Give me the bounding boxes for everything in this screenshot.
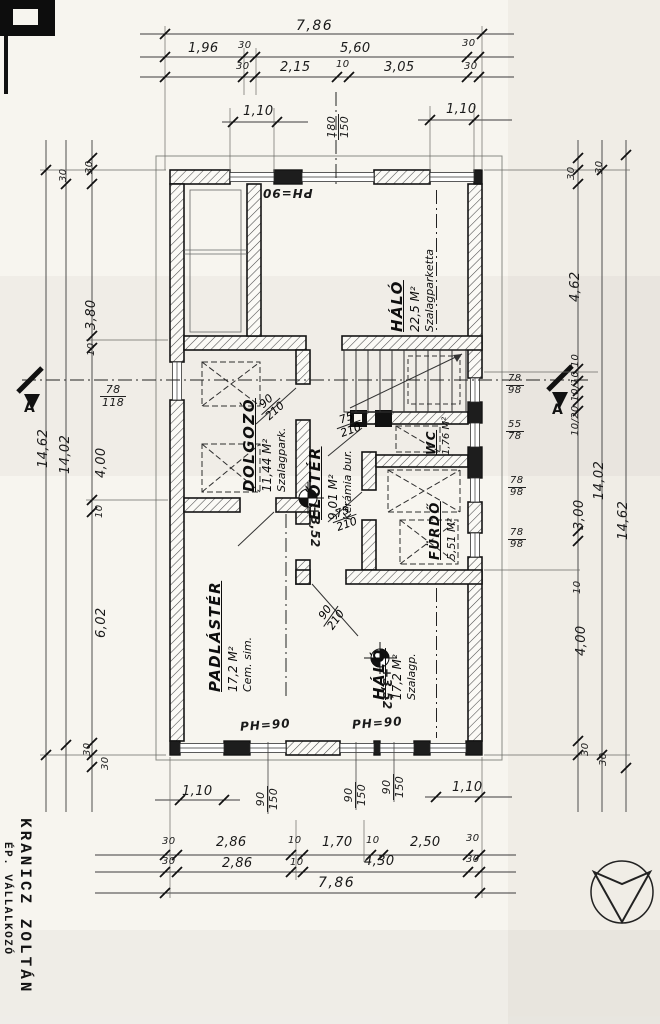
dim-right: 30	[594, 160, 605, 174]
section-letter-left: A	[24, 400, 35, 416]
stamp-architect-name: KRANICZ ZOLTÁN	[16, 818, 34, 994]
dim-left: 30	[82, 742, 93, 756]
dim-right-overall: 14,62	[616, 501, 631, 540]
dim-window-bottom-left: 1,10	[182, 784, 213, 799]
terrace-detail	[184, 190, 247, 332]
dim-bottom: 1,70	[322, 835, 353, 850]
dim-bottom: 10	[290, 857, 304, 868]
room-label-wc: WC 1,76 M²	[424, 417, 453, 455]
dim-right: 3,00	[572, 499, 587, 530]
room-label-padlaster: PADLÁSTÉR 17,2 M² Cem. sim.	[206, 581, 255, 692]
window-size-right-2: 5578	[506, 420, 524, 442]
dim-bottom: 2,50	[410, 835, 441, 850]
dim-right: 30	[580, 742, 591, 756]
window-size-bottom-1: 90150	[255, 786, 279, 812]
level-value-eloter: +3,52	[308, 506, 322, 548]
dim-bottom: 4,30	[364, 854, 395, 869]
dim-top: 30	[236, 61, 250, 72]
dim-bottom-total: 7,86	[318, 875, 355, 891]
dim-top: 1,96	[188, 41, 219, 56]
window-size-right-3: 7898	[508, 476, 526, 498]
dim-left: 3,80	[84, 299, 99, 330]
dim-left: 30	[84, 160, 95, 174]
staircase	[344, 350, 466, 412]
section-letter-right: A	[552, 402, 563, 418]
window-size-right-1: 7898	[506, 374, 524, 396]
dim-bottom: 30	[162, 836, 176, 847]
level-value-halo: +3,52	[380, 668, 394, 710]
dim-right: 30	[598, 752, 609, 766]
window-size-top-main: 180150	[326, 114, 350, 140]
window-size-left-main: 78118	[100, 384, 126, 408]
dim-window-bottom-right: 1,10	[452, 780, 483, 795]
parapet-label-top: PH=90	[262, 186, 313, 200]
dim-top: 3,05	[384, 60, 415, 75]
dim-bottom: 10	[366, 835, 380, 846]
dim-left: 30	[100, 756, 111, 770]
dim-bottom: 30	[466, 854, 480, 865]
room-label-halo-top: HÁLÓ 22,5 M² Szalagparketta	[388, 249, 437, 332]
dim-left-interior: 14,02	[58, 435, 73, 474]
window-size-right-4: 7898	[508, 528, 526, 550]
dim-left-overall: 14,62	[36, 429, 51, 468]
dim-bottom: 30	[466, 833, 480, 844]
dim-left: 6,02	[94, 607, 109, 638]
dim-bottom: 2,86	[216, 835, 247, 850]
room-label-furdo: FÜRDŐ 5,51 M²	[428, 501, 459, 560]
dim-left: 10	[86, 342, 97, 356]
dim-right: 4,62	[568, 271, 583, 302]
dim-top: 30	[464, 61, 478, 72]
scan-artifacts	[0, 0, 55, 94]
dim-top: 10	[336, 59, 350, 70]
dim-right: 10/20 10/10 10	[570, 354, 581, 436]
window-size-bottom-3: 90150	[381, 774, 405, 800]
dim-bottom: 10	[288, 835, 302, 846]
north-arrow-icon	[591, 861, 653, 923]
dim-window-top-right: 1,10	[446, 102, 477, 117]
window-size-bottom-2: 90150	[343, 782, 367, 808]
dim-left: 30	[58, 168, 69, 182]
dim-right: 10	[572, 580, 583, 594]
dim-right: 30	[566, 166, 577, 180]
dim-window-top-left: 1,10	[243, 104, 274, 119]
dim-top-total: 7,86	[296, 18, 333, 34]
dim-top: 30	[462, 38, 476, 49]
dim-bottom: 2,86	[222, 856, 253, 871]
dim-top: 30	[238, 40, 252, 51]
dim-right: 4,00	[574, 625, 589, 656]
stamp-architect-title: ÉP. VÁLLALKOZÓ	[1, 842, 13, 955]
floorplan-scan: 7,86 1,96 30 5,60 30 30 2,15 10 3,05 30 …	[0, 0, 660, 1024]
dim-top: 2,15	[280, 60, 311, 75]
dim-top: 5,60	[340, 41, 371, 56]
room-label-halo-bottom: HÁLÓ 17,2 M² Szalagp.	[370, 648, 419, 700]
dim-right-interior: 14,02	[592, 461, 607, 500]
dim-bottom: 30	[162, 856, 176, 867]
dim-left: 4,00	[94, 447, 109, 478]
dim-left: 10	[94, 504, 105, 518]
